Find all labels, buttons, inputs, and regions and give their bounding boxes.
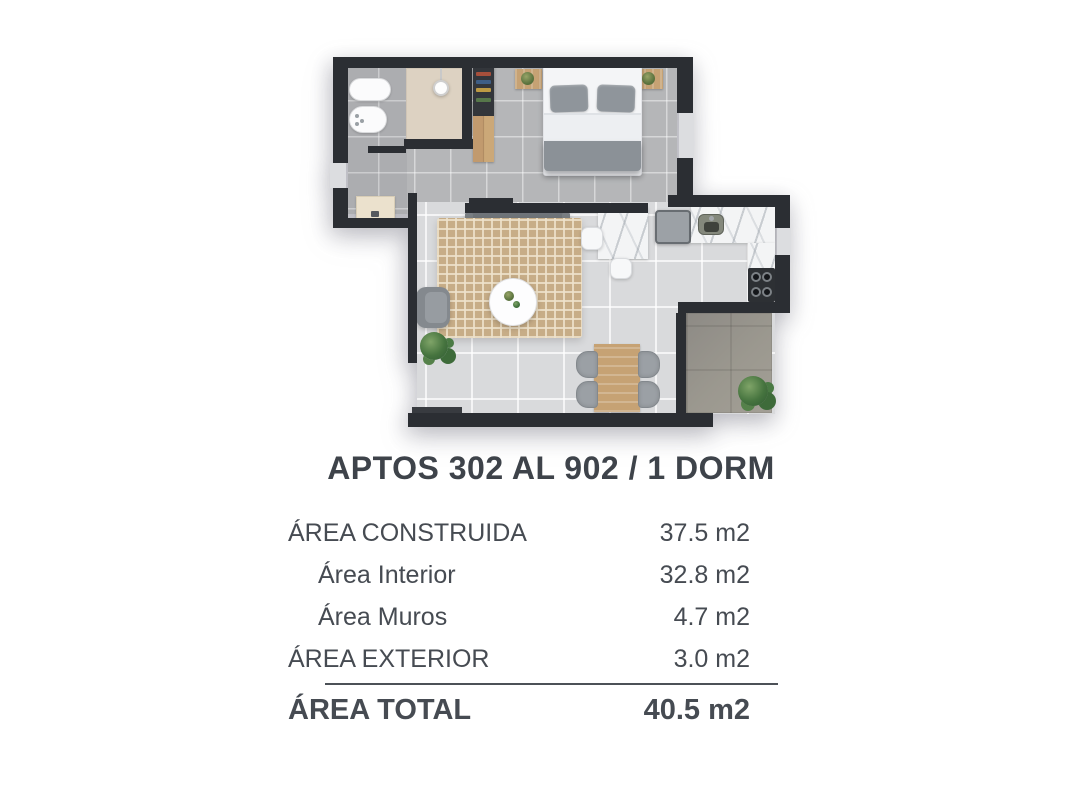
bar-stool: [581, 227, 603, 250]
area-row-construida: ÁREA CONSTRUIDA 37.5 m2: [288, 512, 780, 554]
books: [476, 98, 491, 102]
area-value: 3.0 m2: [674, 645, 780, 674]
wall-shower-side: [462, 62, 472, 146]
toilet-detail: [355, 122, 359, 126]
wall-bedroom-living-lip: [469, 198, 513, 204]
stove-burner: [762, 272, 772, 282]
stove-burner: [762, 287, 772, 297]
window-bedroom: [679, 113, 694, 158]
area-total-label: ÁREA TOTAL: [288, 694, 471, 727]
stove-burner: [751, 287, 761, 297]
wall-balcony-left: [676, 313, 686, 417]
armchair-seat: [425, 292, 447, 323]
plant-living-room: [420, 332, 448, 360]
floorplan-page: APTOS 302 AL 902 / 1 DORM ÁREA CONSTRUID…: [0, 0, 1080, 810]
wall-upper-bottom: [333, 218, 417, 228]
dining-table: [594, 344, 640, 412]
area-label: ÁREA EXTERIOR: [288, 645, 489, 674]
wall-right-kitchen: [775, 205, 790, 228]
dining-chair: [638, 381, 660, 408]
window-kitchen: [777, 228, 791, 255]
wall-hallway-stub: [368, 146, 406, 153]
pillow-right: [597, 84, 636, 112]
shower-floor: [406, 68, 465, 140]
plant-nightstand-right: [642, 72, 655, 85]
wall-left-upper: [333, 57, 348, 163]
plant-balcony: [738, 376, 768, 406]
bathroom-sink: [349, 78, 391, 101]
stove: [748, 268, 775, 302]
area-table: ÁREA CONSTRUIDA 37.5 m2 Área Interior 32…: [288, 512, 780, 733]
area-total-value: 40.5 m2: [644, 694, 780, 727]
bed-duvet: [544, 113, 641, 143]
area-value: 37.5 m2: [660, 519, 780, 548]
wall-top: [333, 57, 693, 68]
wall-right-bedroom: [677, 57, 693, 113]
sink-basin: [704, 222, 719, 232]
dining-chair: [576, 351, 598, 378]
bar-stool: [610, 258, 632, 279]
area-label: Área Interior: [288, 561, 456, 590]
kitchen-peninsula: [598, 207, 648, 259]
wardrobe: [473, 116, 494, 162]
area-label: ÁREA CONSTRUIDA: [288, 519, 527, 548]
books: [476, 72, 491, 76]
stove-burner: [751, 272, 761, 282]
window-bathroom: [330, 163, 346, 188]
kitchen-counter-right: [748, 243, 775, 269]
area-row-exterior: ÁREA EXTERIOR 3.0 m2: [288, 638, 780, 680]
area-value: 4.7 m2: [674, 603, 780, 632]
area-label: Área Muros: [288, 603, 447, 632]
sink-faucet: [709, 216, 714, 221]
dining-chair: [638, 351, 660, 378]
area-row-interior: Área Interior 32.8 m2: [288, 554, 780, 596]
area-row-total: ÁREA TOTAL 40.5 m2: [288, 687, 780, 733]
plant-nightstand-left: [521, 72, 534, 85]
toilet: [349, 106, 387, 133]
table-plant: [513, 301, 520, 308]
washing-machine: [356, 196, 395, 220]
wall-left-lower: [408, 218, 417, 363]
washer-door: [371, 211, 379, 217]
books: [476, 88, 491, 92]
page-title: APTOS 302 AL 902 / 1 DORM: [251, 450, 851, 487]
pillow-left: [550, 84, 589, 112]
door-threshold: [412, 407, 462, 413]
area-row-muros: Área Muros 4.7 m2: [288, 596, 780, 638]
books: [476, 80, 491, 84]
toilet-detail: [355, 114, 359, 118]
wall-bottom: [408, 413, 713, 427]
wall-balcony-top: [678, 302, 790, 313]
table-plant: [504, 291, 514, 301]
armchair: [416, 287, 450, 328]
bookshelf: [473, 66, 494, 116]
wall-bedroom-living: [465, 203, 648, 213]
toilet-detail: [360, 119, 364, 123]
wall-shower-front: [404, 139, 473, 149]
coffee-table: [489, 278, 537, 326]
table-divider: [325, 683, 778, 685]
area-value: 32.8 m2: [660, 561, 780, 590]
pendant-light: [433, 80, 449, 96]
kitchen-island: [655, 210, 691, 244]
dining-chair: [576, 381, 598, 408]
wall-kitchen-top: [668, 195, 790, 207]
kitchen-sink: [698, 214, 724, 235]
bed: [543, 64, 642, 176]
bed-blanket: [544, 141, 641, 171]
